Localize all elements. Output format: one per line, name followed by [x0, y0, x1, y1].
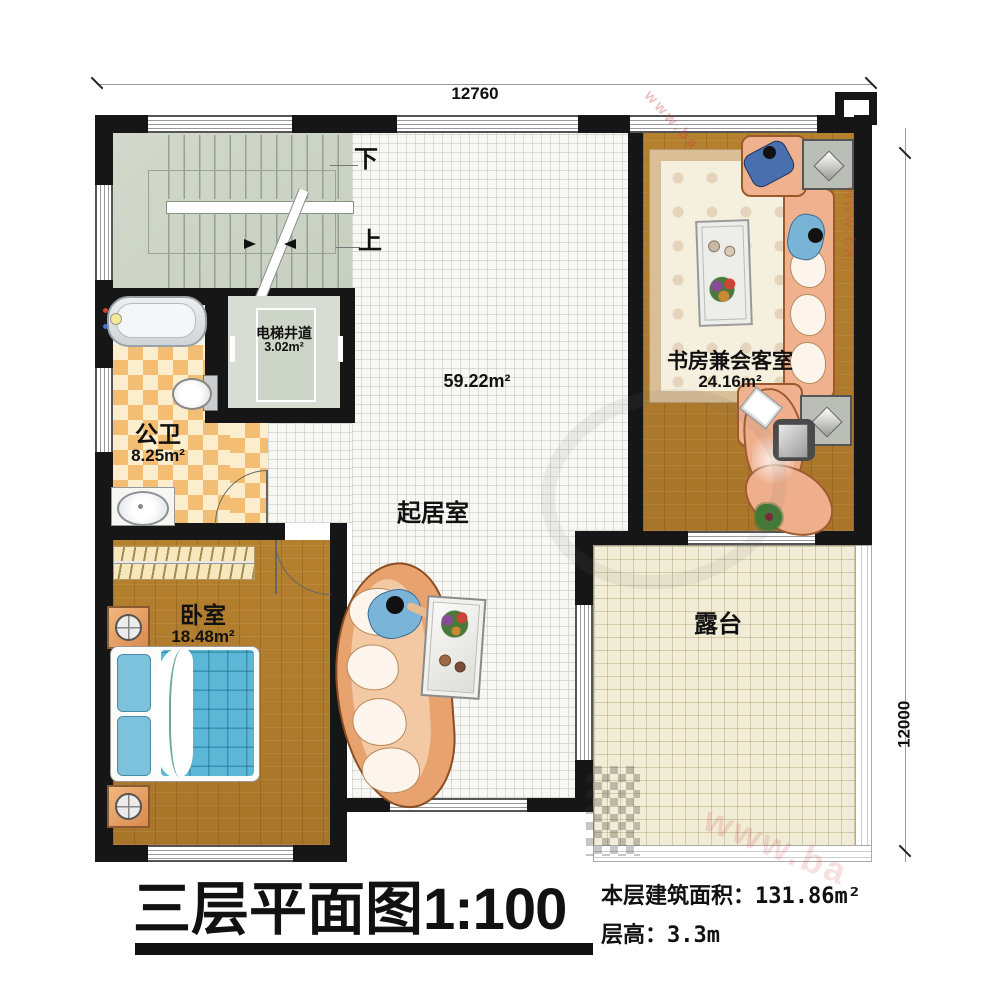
sink-drain — [138, 504, 143, 509]
wall-segment — [292, 115, 397, 133]
wall-segment — [578, 115, 630, 133]
wardrobe — [113, 546, 255, 580]
bathroom-label: 公卫 8.25m² — [116, 422, 200, 466]
bed — [110, 646, 260, 782]
window — [95, 368, 113, 452]
wall-segment — [333, 798, 390, 812]
bed-sheet-fold-line — [169, 649, 195, 777]
stair-direction-arrow — [284, 239, 296, 249]
elevator-label: 电梯井道 3.02m² — [232, 326, 336, 355]
pyramid-lamp-icon — [813, 150, 844, 181]
elevator-name: 电梯井道 — [232, 326, 336, 341]
terrace-label: 露台 — [686, 612, 750, 638]
window — [397, 115, 578, 133]
bedroom-door-leaf — [275, 540, 277, 594]
floor-height-label: 层高： — [601, 917, 667, 949]
bathtub — [107, 296, 207, 347]
wardrobe-rod — [114, 561, 254, 563]
stair-down-label: 下 — [354, 147, 378, 173]
wall-segment — [854, 115, 872, 545]
pillow — [117, 654, 151, 712]
plan-info-block: 本层建筑面积： 131.86m² 层高： 3.3m — [601, 878, 861, 956]
table-lamp — [115, 793, 142, 820]
dimension-top-value: 12760 — [430, 85, 520, 104]
dimension-right-value: 12000 — [896, 679, 915, 769]
plan-title: 三层平面图1:100 — [133, 862, 566, 946]
stair-up-label: 上 — [358, 229, 382, 255]
nightstand — [107, 785, 150, 828]
flower-bouquet — [707, 273, 740, 308]
faucet-dot-red — [103, 308, 108, 313]
table-lamp — [115, 614, 142, 641]
pyramid-lamp-icon — [811, 406, 842, 437]
elevator-area: 3.02m² — [232, 341, 336, 355]
bedroom-name: 卧室 — [155, 603, 251, 628]
hallway-floor — [268, 423, 352, 523]
study-room-label: 书房兼会客室 24.16m² — [655, 350, 805, 392]
stair-pointer-line — [336, 247, 360, 248]
dimension-tick — [865, 77, 878, 90]
study-coffee-table — [695, 219, 753, 327]
living-area-value: 59.22m² — [432, 372, 522, 392]
plan-title-text: 三层平面图 — [133, 862, 423, 946]
sofa-cushion — [790, 294, 826, 336]
stair-flight-lower — [168, 213, 352, 288]
bedroom-area: 18.48m² — [155, 628, 251, 647]
living-coffee-table — [421, 595, 487, 700]
watermark-qr-pattern — [586, 766, 640, 856]
title-underline — [135, 943, 593, 955]
window — [148, 115, 292, 133]
study-name: 书房兼会客室 — [655, 350, 805, 373]
faucet-dot-blue — [103, 324, 108, 329]
bathroom-area: 8.25m² — [116, 447, 200, 466]
dimension-tick — [91, 77, 104, 90]
stair-direction-arrow — [244, 239, 256, 249]
person-living-head — [386, 596, 404, 614]
bathroom-name: 公卫 — [116, 422, 200, 447]
watermark-text: www.ba — [841, 186, 858, 260]
floor-area-row: 本层建筑面积： 131.86m² — [601, 878, 861, 910]
flower-bouquet — [435, 606, 475, 643]
faucet-knob — [110, 313, 122, 325]
nightstand — [107, 606, 150, 649]
floor-height-value: 3.3m — [667, 923, 720, 948]
wall-segment — [815, 531, 872, 545]
wall-segment — [293, 845, 347, 862]
bedroom-label: 卧室 18.48m² — [155, 603, 251, 647]
toilet-bowl — [172, 378, 212, 410]
living-room-label: 起居室 — [378, 501, 488, 527]
wall-segment — [95, 845, 148, 862]
floor-area-value: 131.86m² — [755, 884, 861, 909]
person-in-suit-head — [763, 146, 776, 159]
floor-height-row: 层高： 3.3m — [601, 917, 861, 949]
floor-plan-canvas: 下 上 电梯井道 3.02m² — [0, 0, 1000, 990]
bathroom-door-leaf — [266, 470, 268, 523]
plan-scale: 1:100 — [423, 876, 566, 943]
terrace-door-window — [575, 605, 593, 760]
sink-basin — [117, 491, 169, 526]
side-table-lamp-top — [802, 139, 854, 190]
floor-area-label: 本层建筑面积： — [601, 878, 755, 910]
wall-segment — [95, 115, 113, 185]
bathtub-inner — [116, 303, 196, 338]
window — [95, 185, 113, 280]
person-woman-head — [808, 228, 823, 243]
pillow — [117, 716, 151, 776]
terrace-parapet-right — [855, 545, 872, 862]
window — [148, 845, 293, 862]
elevator-door-slit — [338, 336, 343, 362]
